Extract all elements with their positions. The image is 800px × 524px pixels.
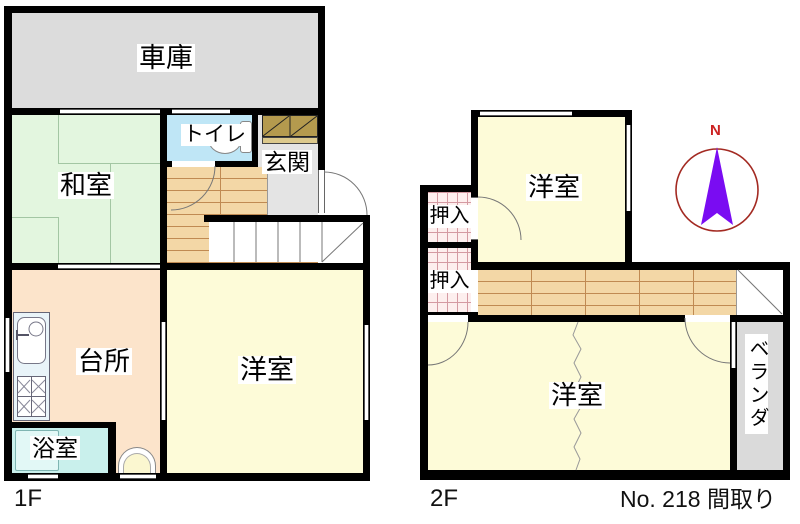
room-label-kitchen: 台所 xyxy=(76,348,132,375)
wall xyxy=(363,215,370,268)
wall xyxy=(4,422,116,428)
plan-number-label: No. 218 間取り xyxy=(620,487,776,511)
room-label-closet-upper: 押入 xyxy=(428,205,471,228)
wall xyxy=(420,185,428,480)
door-opening xyxy=(428,315,468,322)
door-opening xyxy=(471,197,478,240)
door-opening xyxy=(685,315,730,322)
landing-edge xyxy=(736,270,737,315)
wall xyxy=(4,473,370,481)
wall xyxy=(420,242,478,248)
room-label-western-room-2f-lower: 洋室 xyxy=(549,382,605,409)
window xyxy=(364,325,369,420)
room-label-bathroom: 浴室 xyxy=(30,436,80,460)
stair-landing-2f xyxy=(737,270,783,315)
wall xyxy=(420,185,478,192)
compass-north-label: N xyxy=(710,123,721,139)
tatami-line xyxy=(58,217,59,263)
wall xyxy=(204,215,370,222)
room-label-garage: 車庫 xyxy=(137,44,195,72)
room-label-entrance: 玄関 xyxy=(262,150,312,174)
kitchen-sink-stove-icon xyxy=(13,312,50,421)
room-label-western-room-2f-upper: 洋室 xyxy=(526,174,582,201)
window xyxy=(28,474,58,479)
shoe-cabinet-icon xyxy=(262,115,318,144)
room-label-closet-lower: 押入 xyxy=(428,270,471,293)
wall xyxy=(4,6,12,481)
window xyxy=(626,125,631,211)
wall xyxy=(730,315,790,322)
tatami-line xyxy=(58,163,160,164)
hallway-2f-wood-floor xyxy=(478,270,736,315)
wall xyxy=(4,6,325,13)
arch-door-inner xyxy=(123,453,151,473)
window xyxy=(480,111,572,116)
entrance-door-arc xyxy=(324,172,367,215)
wall xyxy=(4,108,325,115)
tatami-line xyxy=(58,115,59,163)
wall xyxy=(783,262,790,480)
window xyxy=(5,318,10,372)
sliding-door xyxy=(58,264,160,269)
floor2-label: 2F xyxy=(430,486,458,511)
room-label-veranda: ベランダ xyxy=(745,334,768,434)
tatami-line xyxy=(12,217,58,218)
wall xyxy=(108,422,116,480)
window xyxy=(172,109,230,114)
staircase xyxy=(209,222,363,262)
window xyxy=(60,109,160,114)
wall xyxy=(252,115,258,161)
room-label-western-room-1f: 洋室 xyxy=(238,356,296,384)
room-label-toilet: トイレ xyxy=(181,124,248,146)
window xyxy=(120,474,156,479)
window xyxy=(731,322,736,368)
sliding-partition xyxy=(161,322,166,420)
floor1-label: 1F xyxy=(14,486,42,511)
room-label-japanese-room: 和室 xyxy=(58,172,114,199)
door-opening xyxy=(172,161,215,167)
floor-plan-canvas: N 車庫 和室 トイレ 玄関 台所 洋室 浴室 洋室 押入 押入 洋室 ベランダ… xyxy=(0,0,800,524)
compass-needle xyxy=(701,147,733,225)
compass xyxy=(667,140,767,240)
wall xyxy=(471,262,790,270)
wall xyxy=(420,470,790,480)
wall xyxy=(318,6,325,172)
wall xyxy=(160,115,167,263)
entrance-door-opening xyxy=(318,170,325,213)
